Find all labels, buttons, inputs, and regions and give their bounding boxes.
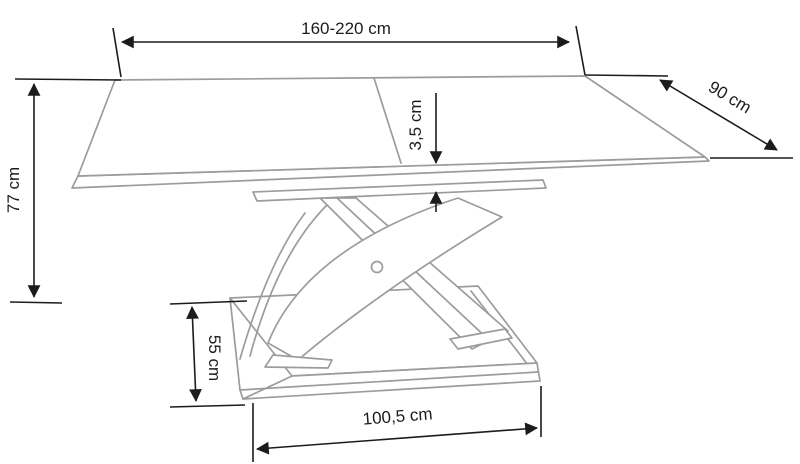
dimension-label-top-thickness: 3,5 cm (406, 99, 425, 150)
dimension-label-base-width: 100,5 cm (362, 404, 433, 429)
dimension-label-base-depth: 55 cm (205, 335, 224, 381)
dimension-arrow (257, 428, 537, 449)
dimension-label-table-height: 77 cm (4, 167, 23, 213)
dimension-drawing: 160-220 cm 90 cm 77 cm 3,5 cm 55 cm (0, 0, 800, 464)
dimension-arrow (192, 307, 196, 401)
table-apron (253, 180, 546, 201)
dimension-base-width: 100,5 cm (253, 386, 541, 462)
dimension-label-table-width: 160-220 cm (301, 19, 391, 38)
dimension-table-width: 160-220 cm (113, 19, 585, 77)
pivot-bolt-icon (372, 262, 383, 273)
table-dimension-diagram: 160-220 cm 90 cm 77 cm 3,5 cm 55 cm (0, 0, 800, 464)
table-top (72, 76, 709, 188)
base-left-edge (230, 298, 240, 390)
